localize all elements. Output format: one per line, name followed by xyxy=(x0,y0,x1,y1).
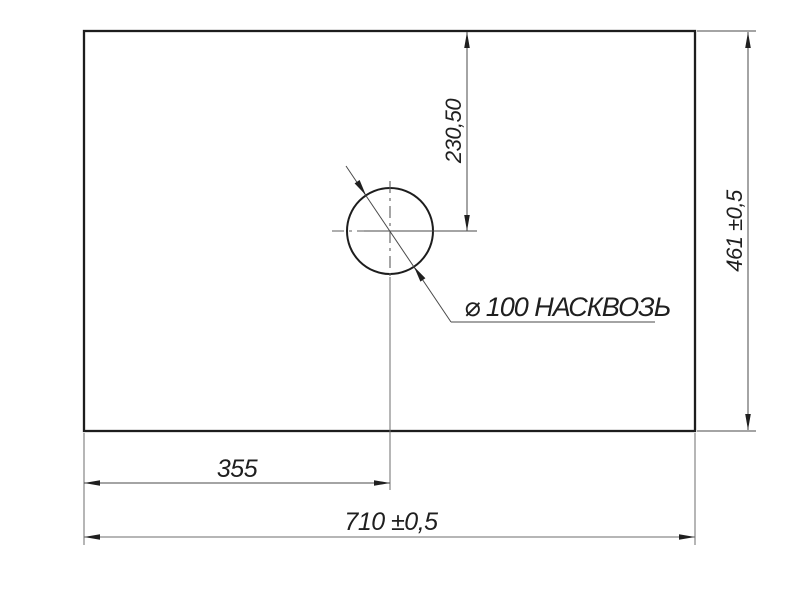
dim-label-panel-width: 710 ±0,5 xyxy=(344,508,438,536)
arrowhead-left-icon xyxy=(84,480,100,486)
dim-label-hole-from-left: 355 xyxy=(217,455,258,483)
arrowhead-down-icon xyxy=(464,215,470,231)
drawing-canvas: 230,50 461 ±0,5 ⌀ 100 НАСКВОЗЬ 355 710 ±… xyxy=(0,0,793,600)
arrowhead-up-icon xyxy=(745,32,751,48)
arrowhead-left-icon xyxy=(84,534,100,540)
arrowhead-up-icon xyxy=(464,32,470,48)
technical-drawing: 230,50 461 ±0,5 ⌀ 100 НАСКВОЗЬ 355 710 ±… xyxy=(0,0,793,600)
dim-label-hole-from-top: 230,50 xyxy=(441,98,466,165)
dim-label-hole-diameter: ⌀ 100 НАСКВОЗЬ xyxy=(464,292,670,322)
arrowhead-right-icon xyxy=(374,480,390,486)
arrowhead-right-icon xyxy=(679,534,695,540)
arrowhead-lower-leader-icon xyxy=(414,267,425,282)
arrowhead-down-icon xyxy=(745,414,751,430)
arrowhead-upper-leader-icon xyxy=(355,180,366,195)
dim-label-panel-height: 461 ±0,5 xyxy=(722,189,747,272)
